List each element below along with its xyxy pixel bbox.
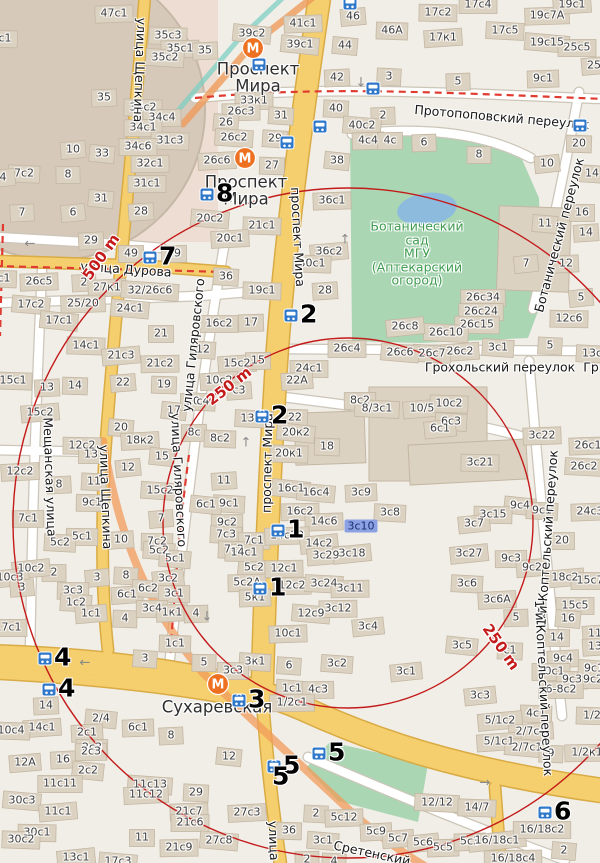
building-label: 32с1 [136,157,163,170]
building-label: 3к1 [245,655,266,668]
building-label: 3с4 [142,602,162,615]
building-label: 13 [40,381,54,394]
garden-label-line: сад [370,233,463,247]
building-label: 11с12 [129,788,163,801]
building-label: 15с2 [146,484,173,497]
building-label: 5с1 [165,552,185,565]
building-label: 2с2 [78,764,98,777]
building-label: 14с1 [230,546,257,559]
building-label: 26с4 [333,342,360,355]
building-label: 21с3 [107,349,134,362]
bus-icon [200,187,215,202]
building-label: 7 [158,512,165,525]
street-label: Грохольский переулок [425,360,575,375]
building-label: 26 [219,116,233,129]
building-label: 18 [320,440,334,453]
building-label: 40с2 [348,119,375,132]
building-label: 26с2 [570,460,597,473]
building-label: 47с1 [100,7,127,20]
stop-number: 1 [269,573,286,602]
garden-label-line: Ботанический [370,219,463,233]
building-label: 46 [346,10,360,23]
bus-icon [42,682,57,697]
building-label: 3с5 [452,639,472,652]
bus-icon [38,651,53,666]
building-label: 34с6 [124,140,151,153]
building-label: 6с1 [430,422,450,435]
building-label: 17с2 [17,298,44,311]
building-label: 44 [338,39,352,52]
building-label: 3с2 [327,657,347,670]
building-label: 10 [114,533,128,546]
building-label: 14с6 [310,515,337,528]
building-label: 1/2к1 [571,746,600,759]
building-label: 3с1 [396,665,416,678]
building-label: 21с6 [176,816,203,829]
building-label: 27с3 [233,806,260,819]
building-label: 32/26с6 [128,284,173,297]
metro-icon: М [206,672,230,696]
building-label: 49 [124,247,138,260]
building-label: 36с1 [318,194,345,207]
building-label: 20 [572,137,586,150]
building-label: 16с1 [277,482,304,495]
building-label: 40 [329,102,343,115]
building-label: 35с3 [154,29,181,42]
metro-icon: М [241,36,265,60]
stop-number: 2 [271,401,288,430]
bus-icon [284,308,299,323]
building-label: 17с2 [424,6,451,19]
building-label: 27к1 [93,281,121,294]
building-label: 7 [19,206,26,219]
building-label: 3с24 [310,577,337,590]
building-label: 21с9 [165,841,192,854]
stop-icon-holder[interactable] [312,746,327,761]
building-label: 4с [383,134,396,147]
building-label: 14с1 [28,721,55,734]
building-label: 10с4 [0,724,25,737]
bus-icon [143,250,158,265]
metro-icon: М [233,146,257,170]
building-label: 14 [68,379,82,392]
bus-icon [366,81,381,96]
building-label: 2/4 [92,712,110,725]
building-label: 29 [189,786,203,799]
building-label: 9с1 [219,497,239,510]
building-label: 12 [121,461,135,474]
building-label: 3с7 [464,517,484,530]
building-label: 9с4 [553,652,573,665]
building-label: 9с1 [533,72,553,85]
building-label: 11с11 [43,777,77,790]
building-label: 30с2 [7,833,34,846]
building-label: 16с2 [205,317,232,330]
building-label: 31с3 [156,134,183,147]
building-label: 31с1 [133,177,160,190]
building-label: 3с22 [528,429,555,442]
building-label: 16/18с1 [475,834,520,847]
building-label: 20с1 [216,232,243,245]
stop-number: 5 [328,738,345,767]
building-label: 15с1 [0,374,27,387]
building-label: 6с1 [128,721,148,734]
building-label: 5с2 [244,561,264,574]
building-label: 8с2 [210,432,230,445]
svg-text:М: М [212,678,225,693]
building-label: 25/20 [67,297,99,310]
building-label: 12с2 [6,465,33,478]
building-label: 10с1 [274,627,301,640]
building-label: 5с6 [413,836,433,849]
building-label: 3с1 [164,587,184,600]
building-label: 31 [94,192,108,205]
building-label: 12с9 [297,607,324,620]
building-label: 7с2 [14,167,34,180]
building-label: 26с6 [203,154,230,167]
bus-icon [343,0,358,11]
building-label: 1с1 [165,637,185,650]
metro-station-icon[interactable]: М [241,36,265,60]
building-label: 14 [39,699,53,712]
building-label: 6 [286,659,293,672]
building-label: 22 [288,411,302,424]
building-label: 12с6 [555,312,582,325]
building-label: 3с29 [312,549,339,562]
building-label: 26с8 [391,320,418,333]
building-label: 16 [561,612,575,625]
building-label: 1/2 [583,709,600,722]
building-label: 3с27 [455,547,482,560]
building-label: 41с1 [289,17,316,30]
building-label: 35 [97,91,111,104]
building-label: 5с7 [388,832,408,845]
building-label: 16 [575,206,589,219]
building-label: 6 [70,206,77,219]
building-label: 4с4 [358,134,378,147]
building-label: 12 [222,750,236,763]
building-label: 9с3 [501,552,521,565]
building-label: 17с1 [0,621,22,634]
building-label: 3с1 [488,341,508,354]
building-label: 3с11 [336,582,363,595]
building-label: 5с12 [330,811,357,824]
building-label: 28 [318,284,332,297]
building-label: 21 [154,327,168,340]
building-label: 2 [561,844,568,857]
selected-building-label[interactable]: 3с10 [344,520,377,533]
tram-icon [253,581,268,596]
building-label: 5с9 [366,825,386,838]
building-label: 3с1 [313,834,333,847]
building-label: 19с1 [558,0,585,11]
stop-icon-holder[interactable] [538,805,553,820]
building-label: 5/1с2 [485,714,516,727]
stop-icon-holder[interactable] [200,187,215,202]
building-label: 6с1 [196,498,216,511]
building-label: 5 [547,339,554,352]
building-label: 20 [555,534,569,547]
building-label: 17с5 [491,24,518,37]
stop-icon-holder[interactable] [42,682,57,697]
stop-number: 4 [58,674,75,703]
garden-label-line: (Аптекарский [370,260,463,274]
building-label: 35 [198,44,212,57]
garden-area-label: БотаническийсадМГУ(Аптекарскийогород) [370,219,463,287]
building-label: 6с2 [138,582,158,595]
transit-stop-icon[interactable] [280,135,295,150]
building-label: 5 [201,656,208,669]
building-label: 29 [84,234,98,247]
stop-icon-holder[interactable] [232,693,247,708]
building-label: 17с3 [104,855,131,863]
building-label: 20с2 [196,212,223,225]
building-label: 2 [313,807,320,820]
building-label: 8 [65,168,72,181]
building-label: 36 [219,270,233,283]
svg-text:М: М [247,42,260,57]
building-label: 3с12 [324,602,351,615]
building-label: 7с3 [216,528,236,541]
building-label: 5 [513,611,520,624]
building-label: 9с1 [584,662,600,675]
building-label: 3 [19,581,26,594]
building-label: 2с3 [81,745,101,758]
transit-stop-icon[interactable] [343,0,358,11]
building-label: 13с1 [62,851,89,863]
oneway-arrow-icon: ↓ [202,610,213,625]
building-label: 3с6А [483,593,511,606]
building-label: 21с2 [146,357,173,370]
bus-icon [312,746,327,761]
building-label: 3 [386,70,393,83]
building-label: 26с2 [220,131,247,144]
building-label: 19с15 [530,36,564,49]
oneway-arrow-icon: → [480,776,491,791]
stop-number: 8 [216,179,233,208]
building-label: 2 [304,853,311,863]
stop-number: 7 [159,242,176,271]
building-label: 26с15 [460,318,494,331]
building-label: 14 [579,226,593,239]
building-label: 12 [559,257,573,270]
building-label: 3с18 [338,547,365,560]
building-label: 15 [155,450,169,463]
stop-number: 6 [554,797,571,826]
oneway-arrow-icon: ← [25,237,36,252]
building-label: 15с5 [561,599,588,612]
building-label: 11с1 [44,805,71,818]
building-label: 14 [585,167,599,180]
building-label: 14с1 [72,339,99,352]
building-label: 1с1 [282,682,302,695]
building-label: 5 [455,75,462,88]
building-label: 26с24 [464,305,498,318]
building-label: 19 [157,378,171,391]
building-label: 26с34 [466,291,500,304]
building-label: 5/1с1 [484,735,515,748]
building-label: 17с1 [45,314,72,327]
building-label: 8 [168,729,175,742]
building-label: 12/12 [421,796,453,809]
building-label: 15 [251,354,265,367]
svg-text:М: М [239,152,252,167]
building-label: 14/7 [465,801,490,814]
building-label: 1к1 [162,606,183,619]
building-label: 26с6 [386,346,413,359]
building-label: 3с3 [470,689,490,702]
building-label: 4 [193,607,200,620]
stop-icon-holder[interactable] [38,651,53,666]
building-label: 4с3 [308,683,328,696]
oneway-arrow-icon: ← [80,656,91,671]
bus-icon [313,119,328,134]
building-label: 17 [244,316,258,329]
building-label: 2 [51,566,58,579]
building-label: 11 [588,627,600,640]
building-label: 36 [282,824,296,837]
oneway-arrow-icon: ↑ [340,233,351,248]
building-label: 35с2 [151,51,178,64]
building-label: 24с3 [576,505,600,518]
building-label: 16с4 [302,486,329,499]
building-label: 31 [274,109,288,122]
building-label: 11 [135,831,149,844]
street-label: Гр [583,360,599,375]
building-label: 8 [476,148,483,161]
building-label: 27 [265,159,279,172]
building-label: 5с5 [433,841,453,854]
building-label: 28 [134,205,148,218]
building-label: 4 [331,855,338,863]
building-label: 22 [116,376,130,389]
building-label: 30с3 [8,794,35,807]
bus-icon [538,805,553,820]
building-label: 24с1 [116,302,143,315]
building-label: 3с9 [351,486,371,499]
building-label: 5с1 [72,530,92,543]
building-label: 25 [587,59,600,72]
building-label: 20к1 [275,447,303,460]
oneway-arrow-icon: ↑ [241,436,252,451]
stop-number: 2 [300,300,317,329]
stop-number: 5 [272,762,289,791]
building-label: 17к1 [429,31,457,44]
stop-icon-holder[interactable] [143,250,158,265]
building-label: 10/5 [410,402,435,415]
stop-icon-holder[interactable] [284,308,299,323]
building-label: 3с21 [466,456,493,469]
stop-icon-holder[interactable] [255,409,270,424]
building-label: 39с1 [286,38,313,51]
building-label: 4 [0,171,7,184]
garden-label-line: огород) [370,273,463,287]
building-label: 14 [550,631,564,644]
transit-stop-icon[interactable] [573,118,588,133]
building-label: 7 [523,257,530,270]
building-label: 3с6 [457,577,477,590]
tram-icon [232,693,247,708]
building-label: 11 [217,474,231,487]
building-label: 7с1 [18,512,38,525]
building-label: 8 [123,569,130,582]
building-label: 18с2 [551,571,578,584]
stop-icon-holder[interactable] [271,523,286,538]
building-label: 13с [582,347,600,360]
bus-icon [271,523,286,538]
transit-stop-icon[interactable] [366,81,381,96]
building-label: 2/7с1 [512,741,543,754]
building-label: 3 [142,652,149,665]
building-label: 15с7 [576,574,600,587]
building-label: 16/18с4 [491,852,536,863]
building-label: с1 [0,32,12,45]
building-label: 26с10 [429,326,463,339]
building-label: 26с5 [25,275,52,288]
stop-number: 4 [54,643,71,672]
building-label: 17с4 [464,0,491,11]
stop-icon-holder[interactable] [253,581,268,596]
building-label: 2с1 [77,726,97,739]
bus-icon [573,118,588,133]
transit-stop-icon[interactable] [313,119,328,134]
building-label: 6с1 [117,588,137,601]
stop-number: 1 [287,515,304,544]
building-label: 33 [95,147,109,160]
stop-number: 3 [248,685,265,714]
building-label: 9с4 [510,499,530,512]
building-label: 26с2 [446,345,473,358]
metro-station-icon[interactable]: М [206,672,230,696]
building-label: 42 [330,71,344,84]
building-label: 38 [330,154,344,167]
building-label: 16 [56,753,70,766]
building-label: 12А [14,756,36,769]
building-label: 3с4 [358,620,378,633]
metro-station-icon[interactable]: М [233,146,257,170]
building-label: 19с1 [248,284,275,297]
building-label: 8/3с1 [362,402,393,415]
building-label: 26с7 [418,347,445,360]
building-label: 2 [380,109,387,122]
map-canvas[interactable]: 47с1с13535с335с135с234с234с434с131с334с6… [0,0,600,863]
building-label: 3с2 [158,572,178,585]
building-label: 13 [588,640,600,653]
building-label: 21с1 [248,219,275,232]
tram-icon [255,409,270,424]
building-label: 3 [94,571,101,584]
building-label: 1с1 [81,607,101,620]
building-label: 20 [114,421,128,434]
building-label: 25с5 [563,41,590,54]
metro-label-line: Мира [217,78,300,95]
building-label: 22А [286,374,308,387]
building-label: 5с2 [50,536,70,549]
building-label: 26с1 [574,439,600,452]
building-label: с1 [0,272,11,285]
building-label: 5 [578,291,585,304]
building-label: 8с [187,426,200,439]
building-label: 27с8 [205,834,232,847]
building-label: 6 [421,136,428,149]
building-label: 10 [66,143,80,156]
bus-icon [280,135,295,150]
building-label: 4 [122,612,129,625]
building-label: 1/2с1 [277,696,308,709]
garden-label-line: МГУ [370,246,463,260]
building-label: 10с2 [435,397,462,410]
building-label: 3с8 [380,506,400,519]
